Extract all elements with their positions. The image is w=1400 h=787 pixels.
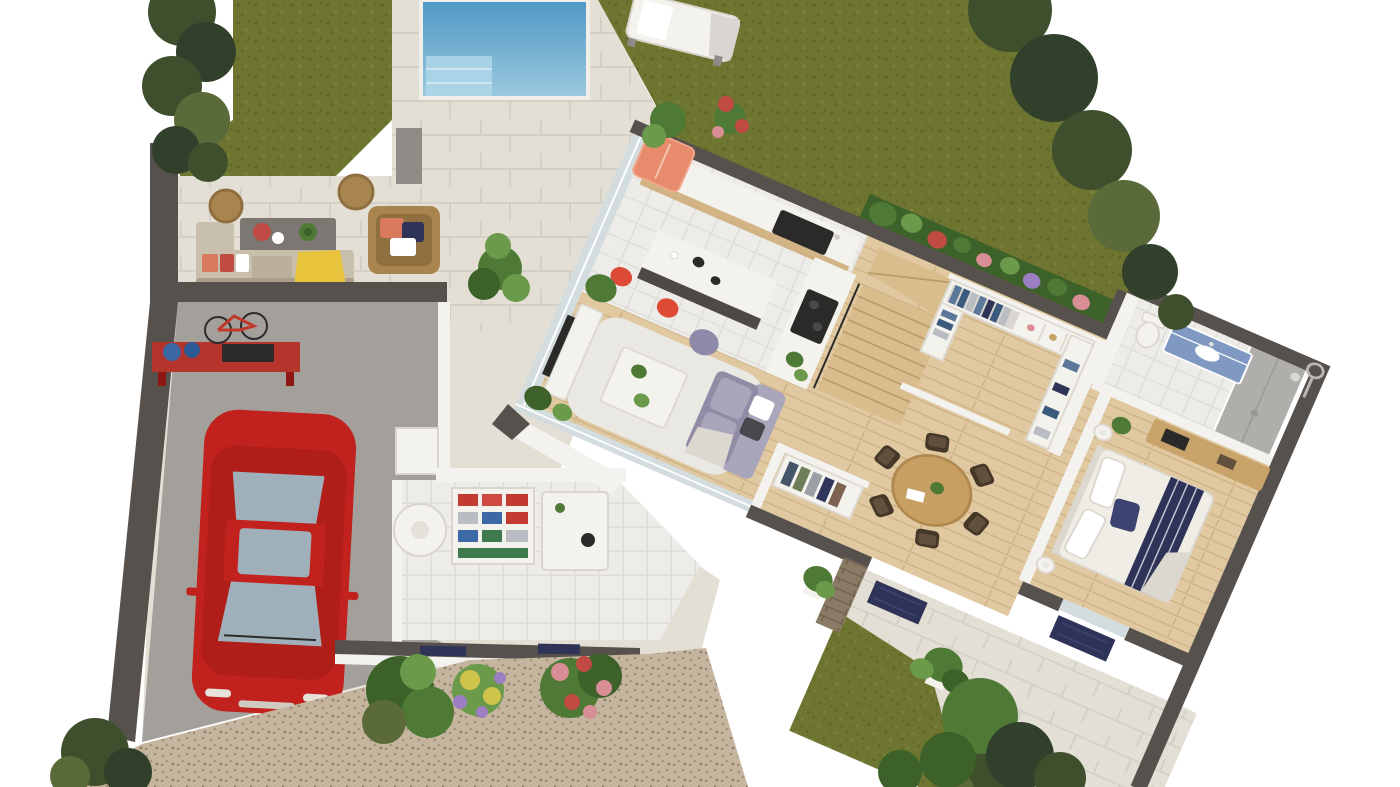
rattan-pouf bbox=[339, 175, 373, 209]
blue-bucket bbox=[163, 343, 181, 361]
garage-east-wall bbox=[438, 302, 450, 480]
garage-north-wall bbox=[150, 282, 447, 302]
floor-plan-svg bbox=[0, 0, 1400, 787]
storage-cabinet bbox=[396, 428, 438, 474]
water-heater bbox=[394, 504, 446, 556]
rattan-armchair bbox=[368, 206, 440, 274]
storage-shelving bbox=[452, 488, 534, 564]
toolbox bbox=[222, 344, 274, 362]
pool-steps bbox=[426, 56, 492, 96]
pool-step-edge bbox=[426, 82, 492, 84]
deck-gate-post bbox=[396, 128, 422, 184]
red-car bbox=[180, 407, 368, 718]
pool-step-edge bbox=[426, 68, 492, 70]
car-sunroof bbox=[237, 528, 311, 578]
car-mirror bbox=[346, 592, 358, 601]
window-mat bbox=[538, 644, 580, 655]
floor-plan-render bbox=[0, 0, 1400, 787]
blue-bucket bbox=[184, 342, 200, 358]
rattan-pouf bbox=[210, 190, 242, 222]
laundry-west-wall bbox=[392, 480, 402, 642]
car-rear-window bbox=[230, 471, 324, 524]
car-mirror bbox=[186, 587, 198, 596]
laundry-counter bbox=[542, 492, 608, 570]
window-mat bbox=[420, 646, 466, 657]
car-headlight bbox=[205, 688, 231, 697]
